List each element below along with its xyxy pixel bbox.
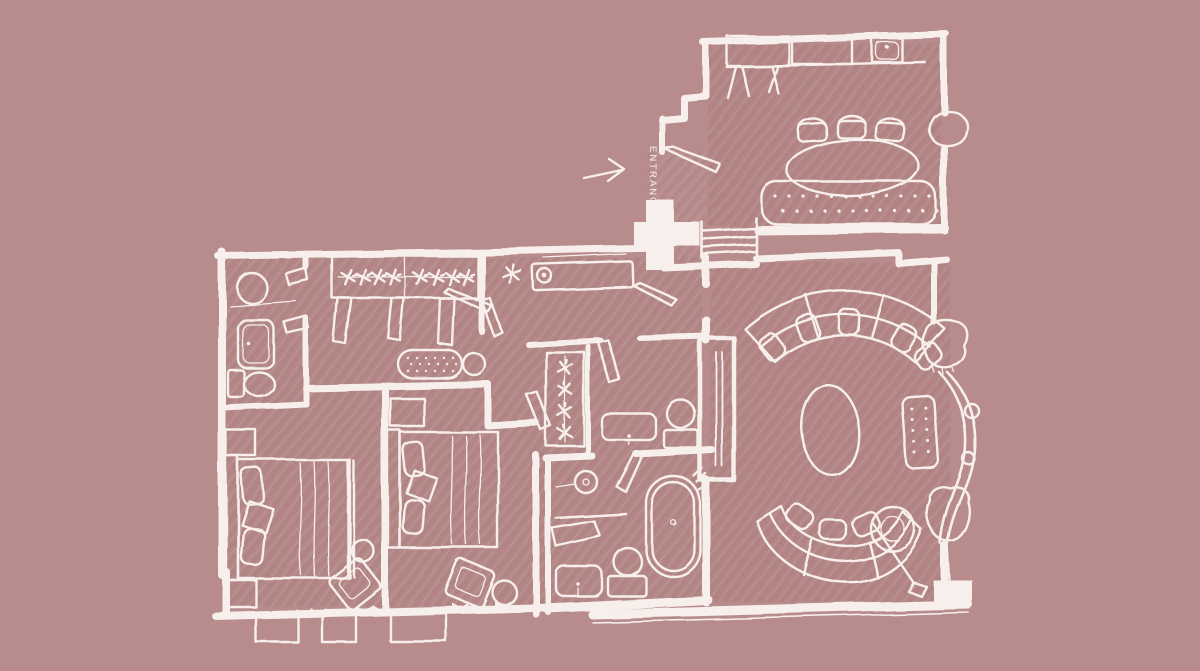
dining-living-wall — [758, 228, 944, 230]
floor-plan-svg: ENTRANCE — [0, 0, 1200, 671]
entrance-arrow-icon — [584, 159, 624, 181]
floor-plan-canvas: ENTRANCE — [0, 0, 1200, 671]
entrance-label: ENTRANCE — [647, 146, 658, 214]
dining-left-wall — [662, 42, 706, 120]
bay-bottom-pier — [933, 580, 972, 604]
entry-wall-pier-arm — [634, 222, 700, 246]
bath-small-bottom-wall — [222, 404, 306, 408]
